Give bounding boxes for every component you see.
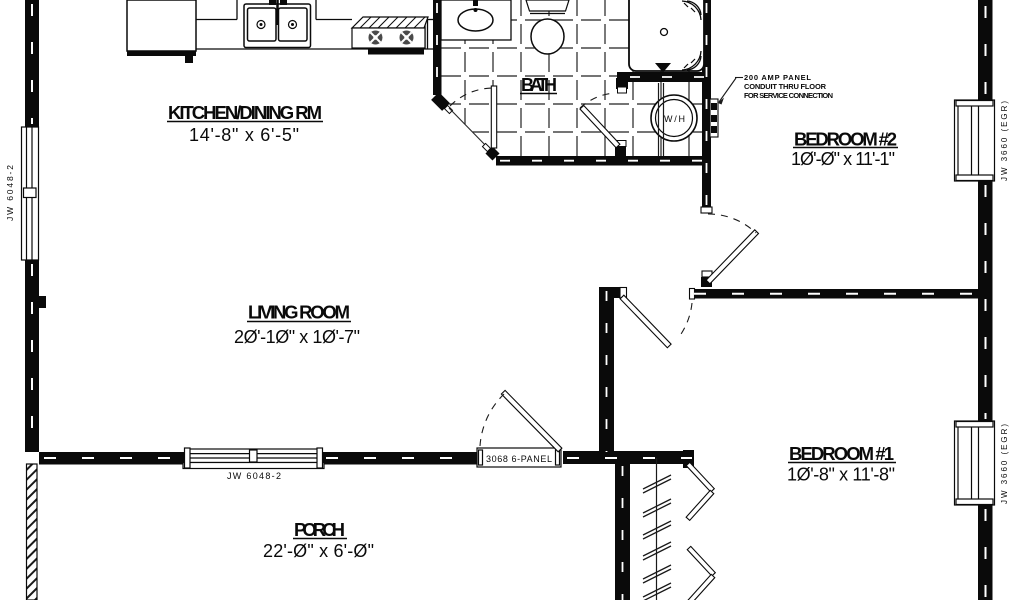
svg-text:JW 6048-2: JW 6048-2 bbox=[227, 471, 281, 481]
svg-text:3068 6-PANEL: 3068 6-PANEL bbox=[486, 454, 552, 464]
svg-text:PORCH: PORCH bbox=[294, 519, 345, 540]
svg-text:1Ø'-8" x 11'-8": 1Ø'-8" x 11'-8" bbox=[787, 465, 895, 485]
svg-text:200 AMP PANEL: 200 AMP PANEL bbox=[744, 73, 811, 82]
svg-text:FOR SERVICE CONNECTION: FOR SERVICE CONNECTION bbox=[744, 91, 833, 100]
svg-text:BATH: BATH bbox=[521, 75, 557, 95]
svg-text:JW 3660 (EGR): JW 3660 (EGR) bbox=[1000, 101, 1009, 181]
svg-text:2Ø'-1Ø" x 1Ø'-7": 2Ø'-1Ø" x 1Ø'-7" bbox=[234, 327, 360, 347]
svg-text:JW 3660 (EGR): JW 3660 (EGR) bbox=[1000, 424, 1009, 504]
svg-text:KITCHEN/DINING RM: KITCHEN/DINING RM bbox=[168, 102, 322, 123]
svg-text:CONDUIT THRU FLOOR: CONDUIT THRU FLOOR bbox=[744, 82, 827, 91]
svg-text:BEDROOM #2: BEDROOM #2 bbox=[794, 129, 897, 150]
svg-text:LIVING ROOM: LIVING ROOM bbox=[248, 302, 350, 323]
svg-text:14'-8" x 6'-5": 14'-8" x 6'-5" bbox=[189, 125, 299, 145]
svg-text:BEDROOM #1: BEDROOM #1 bbox=[789, 443, 894, 464]
svg-text:1Ø'-Ø" x 11'-1": 1Ø'-Ø" x 11'-1" bbox=[791, 149, 895, 169]
svg-text:JW 6048-2: JW 6048-2 bbox=[5, 165, 15, 221]
svg-text:22'-Ø" x 6'-Ø": 22'-Ø" x 6'-Ø" bbox=[263, 541, 374, 561]
svg-text:W/H: W/H bbox=[664, 114, 685, 124]
